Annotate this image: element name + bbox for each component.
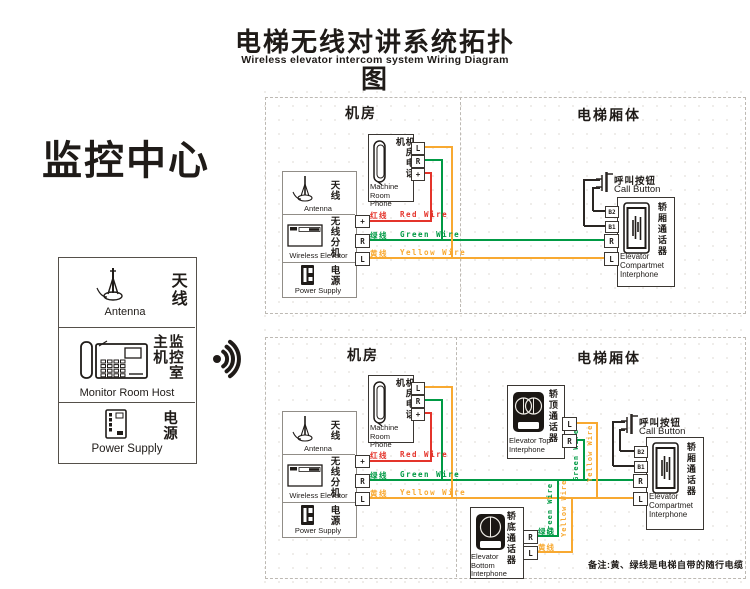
call-wire — [613, 465, 634, 467]
yellow-wire-label: 黄线 Yellow Wire — [370, 488, 466, 499]
yellow-wire-label-zh: 黄线 — [370, 488, 388, 499]
terminal-equip-l: L — [355, 492, 370, 506]
terminal-equip-plus: + — [355, 455, 370, 468]
green-wire — [583, 439, 585, 480]
monitor-power-label-zh: 电源 — [160, 410, 176, 444]
antenna-icon — [291, 415, 317, 445]
monitor-host-label-en: Monitor Room Host — [62, 387, 192, 400]
yellow-wire-vertical-label: Yellow Wire — [586, 432, 594, 482]
yellow-wire — [596, 422, 598, 498]
green-wire — [557, 479, 559, 537]
terminal-bottominterphone-l: L — [523, 546, 538, 560]
yellow-wire — [424, 386, 453, 388]
call-button-icon — [621, 413, 639, 435]
antenna-icon — [291, 175, 317, 205]
machine-phone-label-en: Machine Room Phone — [370, 424, 412, 450]
call-button-label-en: Call Button — [639, 426, 685, 437]
equip-antenna-zh: 天线 — [328, 420, 338, 446]
call-wire — [612, 421, 614, 466]
monitor-antenna-label-en: Antenna — [80, 306, 170, 319]
wiring-diagram-page: 电梯无线对讲系统拓扑图 Wireless elevator intercom s… — [0, 0, 750, 589]
bottom-interphone-en: Elevator Bottom Interphone — [471, 553, 521, 579]
terminal-phone-plus: + — [411, 408, 425, 421]
terminal-phone-l: L — [411, 382, 425, 395]
red-wire-label-zh: 红线 — [370, 210, 388, 221]
compartment-interphone-en: Elevator Compartmet Interphone — [649, 492, 702, 520]
call-button-icon — [596, 171, 614, 193]
page-subtitle: Wireless elevator intercom system Wiring… — [210, 54, 540, 66]
red-wire-label: 红线 Red Wire — [370, 450, 448, 461]
bottom-section-divider — [456, 337, 457, 577]
red-wire-label-en: Red Wire — [400, 210, 448, 221]
yellow-wire-label: 黄线 Yellow Wire — [370, 248, 466, 259]
terminal-interphone-r: R — [633, 474, 648, 488]
red-wire-label-en: Red Wire — [400, 450, 448, 461]
top-interphone-speaker-icon — [512, 390, 546, 436]
monitor-center-heading: 监控中心 — [42, 128, 210, 186]
terminal-b1: B1 — [634, 461, 648, 473]
terminal-phone-plus: + — [411, 168, 425, 181]
call-wire — [620, 450, 634, 452]
terminal-b2: B2 — [634, 446, 648, 458]
top-section-divider — [460, 97, 461, 312]
compartment-interphone-en: Elevator Compartmet Interphone — [620, 252, 673, 280]
terminal-interphone-r: R — [604, 234, 619, 248]
monitor-box-divider-2 — [58, 402, 195, 403]
bottom-machine-room-label: 机房 — [347, 345, 379, 365]
terminal-phone-r: R — [411, 395, 425, 408]
bottom-interphone-speaker-icon — [475, 512, 507, 554]
red-wire-label: 红线 Red Wire — [370, 210, 448, 221]
equipment-divider-1 — [282, 454, 355, 455]
terminal-phone-r: R — [411, 155, 425, 168]
green-wire-vertical-label: Green Wire — [546, 495, 554, 535]
green-wire-label-zh: 绿线 — [370, 470, 388, 481]
equip-antenna-en: Antenna — [285, 445, 351, 454]
terminal-equip-l: L — [355, 252, 370, 266]
equipment-divider-2 — [282, 262, 355, 263]
interphone-speaker-icon — [622, 202, 652, 254]
antenna-icon — [95, 266, 129, 306]
power-supply-icon — [299, 504, 317, 526]
terminal-interphone-l: L — [604, 252, 619, 266]
monitor-box-divider-1 — [58, 327, 195, 328]
yellow-wire-short-label: 黄线 — [538, 542, 555, 553]
yellow-wire — [451, 386, 453, 498]
call-wire — [583, 179, 585, 226]
green-wire — [441, 159, 443, 240]
handset-icon — [372, 380, 388, 428]
terminal-equip-r: R — [355, 234, 370, 248]
wireless-signal-icon — [208, 334, 256, 384]
terminal-topinterphone-r: R — [562, 434, 577, 448]
terminal-equip-plus: + — [355, 215, 370, 228]
yellow-wire — [571, 497, 573, 553]
yellow-wire — [575, 422, 598, 424]
terminal-interphone-l: L — [633, 492, 648, 506]
terminal-topinterphone-l: L — [562, 417, 577, 431]
yellow-wire-label-en: Yellow Wire — [400, 248, 466, 259]
top-machine-room-label: 机房 — [345, 103, 377, 123]
desk-phone-icon — [79, 336, 151, 384]
bottom-elevator-body-label: 电梯厢体 — [577, 348, 641, 368]
terminal-bottominterphone-r: R — [523, 530, 538, 544]
footnote: 备注:黄、绿线是电梯自带的随行电缆 — [588, 558, 744, 571]
green-wire-label-en: Green Wire — [400, 470, 460, 481]
wireless-unit-icon — [287, 222, 323, 248]
green-wire-label: 绿线 Green Wire — [370, 230, 460, 241]
green-wire-label: 绿线 Green Wire — [370, 470, 460, 481]
equip-power-en: Power Supply — [285, 287, 351, 296]
call-wire — [584, 225, 605, 227]
yellow-wire-label-en: Yellow Wire — [400, 488, 466, 499]
handset-icon — [372, 139, 388, 187]
monitor-power-label-en: Power Supply — [68, 443, 186, 456]
terminal-equip-r: R — [355, 474, 370, 488]
yellow-wire — [424, 146, 453, 148]
green-wire — [441, 399, 443, 480]
wireless-unit-icon — [287, 462, 323, 488]
monitor-antenna-label-zh: 天线 — [168, 272, 186, 316]
call-button-label-en: Call Button — [614, 184, 660, 195]
terminal-b2: B2 — [605, 206, 619, 218]
top-elevator-body-label: 电梯厢体 — [577, 105, 641, 125]
machine-phone-label-en: Machine Room Phone — [370, 183, 412, 209]
equipment-divider-1 — [282, 214, 355, 215]
green-wire-label-en: Green Wire — [400, 230, 460, 241]
terminal-b1: B1 — [605, 221, 619, 233]
yellow-wire-vertical-label: Yellow Wire — [560, 497, 568, 537]
interphone-speaker-icon — [651, 442, 681, 494]
monitor-host-label-zh: 监控室主机 — [150, 334, 182, 386]
equip-antenna-en: Antenna — [285, 205, 351, 214]
call-wire — [593, 210, 605, 212]
green-wire-label-zh: 绿线 — [370, 230, 388, 241]
power-supply-icon — [104, 408, 128, 440]
top-interphone-en: Elevator Top Interphone — [509, 437, 561, 454]
red-wire-label-zh: 红线 — [370, 450, 388, 461]
equip-wireless-en: Wireless Elevator — [283, 252, 354, 261]
equip-wireless-en: Wireless Elevator — [283, 492, 354, 501]
power-supply-icon — [299, 264, 317, 286]
equipment-divider-2 — [282, 502, 355, 503]
equip-power-en: Power Supply — [285, 527, 351, 536]
terminal-phone-l: L — [411, 142, 425, 155]
yellow-wire-label-zh: 黄线 — [370, 248, 388, 259]
call-wire — [592, 187, 594, 211]
yellow-wire — [451, 146, 453, 258]
equip-antenna-zh: 天线 — [328, 180, 338, 206]
